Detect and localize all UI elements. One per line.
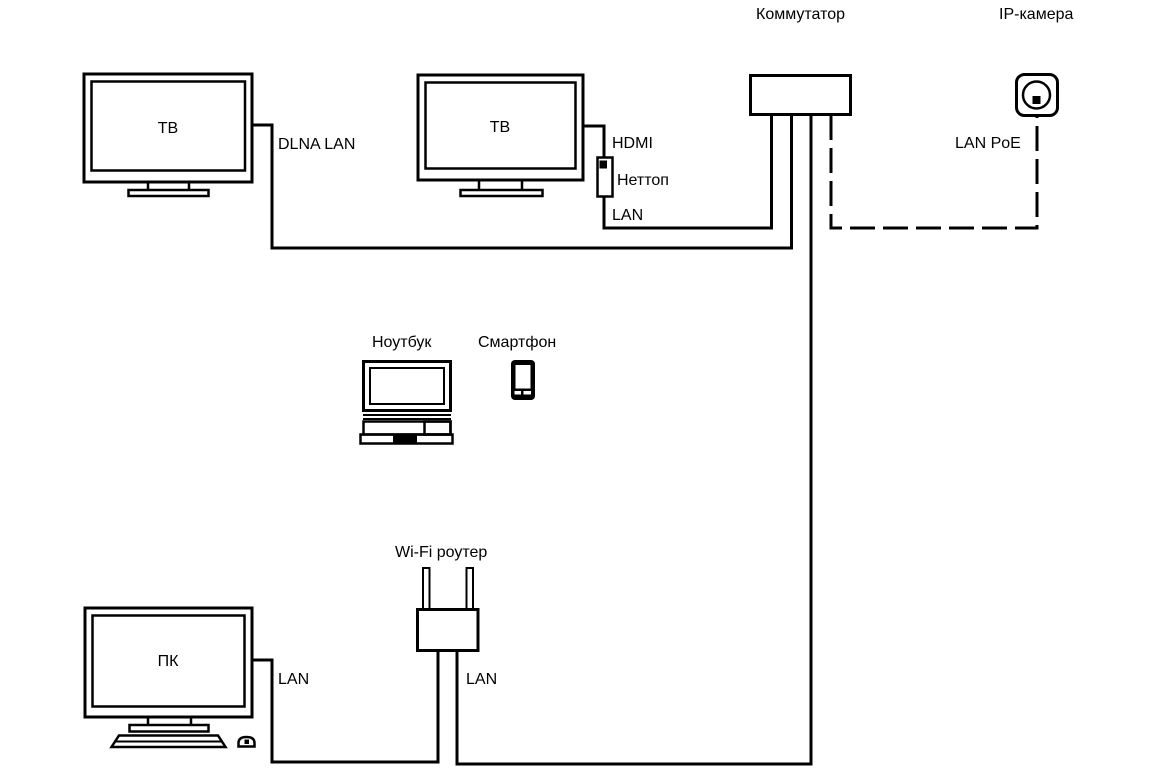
phone-button-left <box>515 391 522 395</box>
network-diagram-page: ТВ ТВ Неттоп Коммутатор IP-камера <box>0 0 1168 768</box>
router-label: Wi-Fi роутер <box>395 544 487 561</box>
node-pc: ПК <box>85 608 255 747</box>
pc-mouse-wheel <box>245 740 250 745</box>
node-nettop: Неттоп <box>598 158 669 197</box>
laptop-touchpad <box>425 422 451 435</box>
nettop-power-dot <box>600 161 608 169</box>
router-antenna-right <box>467 568 474 610</box>
cable-switch-to-camera <box>831 115 1037 228</box>
link-label-nettop-lan: LAN <box>612 207 643 224</box>
node-ip-camera: IP-камера <box>999 6 1073 116</box>
tv1-stand-base <box>129 190 209 196</box>
tv1-label: ТВ <box>158 120 178 137</box>
node-tv1: ТВ <box>84 74 252 196</box>
switch-label: Коммутатор <box>756 6 845 23</box>
pc-stand-base <box>130 725 209 732</box>
link-label-hdmi: HDMI <box>612 135 653 152</box>
camera-label: IP-камера <box>999 6 1073 23</box>
node-tv2: ТВ <box>418 75 583 196</box>
node-router: Wi-Fi роутер <box>395 544 487 651</box>
laptop-base-notch <box>393 435 417 444</box>
camera-lens <box>1023 82 1050 109</box>
laptop-screen <box>370 368 444 404</box>
node-smartphone: Смартфон <box>478 334 556 400</box>
laptop-keyboard-deck <box>364 422 451 435</box>
router-antenna-left <box>423 568 430 610</box>
node-laptop: Ноутбук <box>361 334 453 444</box>
cable-pc-to-router <box>252 652 438 762</box>
phone-screen <box>516 365 531 389</box>
link-label-dlna-lan: DLNA LAN <box>278 136 355 153</box>
pc-label: ПК <box>158 653 180 670</box>
camera-lens-dot <box>1033 96 1041 104</box>
link-label-lan-poe: LAN PoE <box>955 135 1021 152</box>
node-switch: Коммутатор <box>751 6 851 115</box>
phone-button-right <box>524 391 532 395</box>
laptop-label: Ноутбук <box>372 334 432 351</box>
router-body <box>418 610 479 651</box>
network-diagram: ТВ ТВ Неттоп Коммутатор IP-камера <box>0 0 1168 768</box>
link-label-router-lan: LAN <box>466 671 497 688</box>
switch-box <box>751 76 851 115</box>
laptop-hinge <box>363 415 451 419</box>
cable-tv2-to-nettop <box>583 126 604 157</box>
tv2-label: ТВ <box>490 119 510 136</box>
tv2-stand-base <box>461 190 543 196</box>
link-label-pc-lan: LAN <box>278 671 309 688</box>
smartphone-label: Смартфон <box>478 334 556 351</box>
nettop-label: Неттоп <box>617 172 669 189</box>
